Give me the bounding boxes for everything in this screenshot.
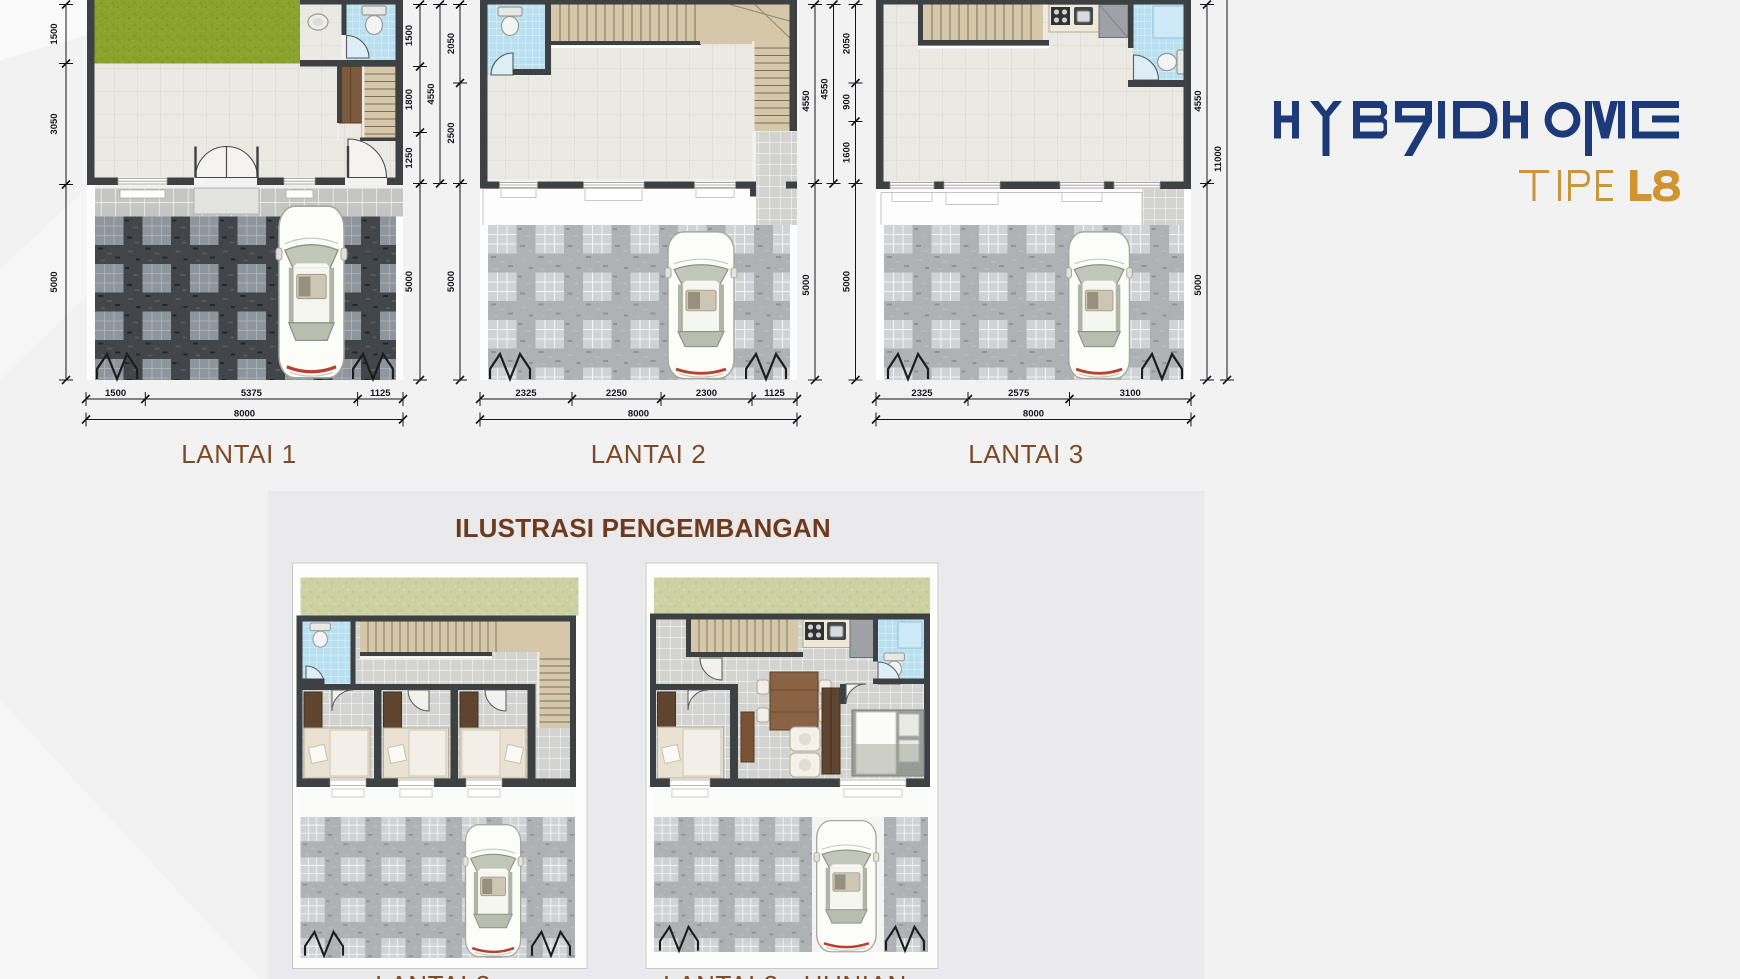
svg-text:1500: 1500 <box>49 23 60 44</box>
svg-text:LANTAI 1: LANTAI 1 <box>181 439 297 469</box>
svg-text:1500: 1500 <box>105 388 126 399</box>
svg-text:2050: 2050 <box>446 33 457 54</box>
svg-text:8000: 8000 <box>628 409 649 420</box>
svg-text:2325: 2325 <box>911 388 933 399</box>
svg-text:4550: 4550 <box>801 90 812 111</box>
svg-text:2050: 2050 <box>842 33 853 54</box>
svg-text:900: 900 <box>842 94 853 110</box>
svg-text:LANTAI 2: LANTAI 2 <box>591 439 707 469</box>
svg-text:2500: 2500 <box>446 122 457 143</box>
svg-text:8000: 8000 <box>1023 409 1044 420</box>
svg-text:LANTAI 3: LANTAI 3 <box>968 439 1084 469</box>
svg-text:1600: 1600 <box>842 142 853 163</box>
svg-text:LANTAI 2: LANTAI 2 <box>375 970 491 979</box>
svg-text:3100: 3100 <box>1120 388 1141 399</box>
svg-text:1125: 1125 <box>764 388 785 399</box>
svg-text:11000: 11000 <box>1213 146 1224 172</box>
svg-text:4550: 4550 <box>820 78 831 99</box>
svg-text:5000: 5000 <box>801 274 812 295</box>
svg-text:2250: 2250 <box>606 388 627 399</box>
svg-text:5000: 5000 <box>49 271 60 292</box>
svg-text:1800: 1800 <box>404 89 415 110</box>
svg-text:2325: 2325 <box>515 388 537 399</box>
svg-text:3050: 3050 <box>49 113 60 134</box>
svg-text:5000: 5000 <box>446 271 457 292</box>
svg-text:4550: 4550 <box>426 83 437 104</box>
svg-text:1500: 1500 <box>404 25 415 46</box>
svg-text:1250: 1250 <box>404 147 415 168</box>
svg-text:LANTAI 3 - HUNIAN: LANTAI 3 - HUNIAN <box>663 970 907 979</box>
svg-text:2300: 2300 <box>696 388 717 399</box>
svg-text:1125: 1125 <box>370 388 391 399</box>
svg-text:2575: 2575 <box>1008 388 1030 399</box>
svg-text:4550: 4550 <box>1193 90 1204 111</box>
svg-text:5000: 5000 <box>1193 274 1204 295</box>
svg-text:5000: 5000 <box>404 271 415 292</box>
svg-text:8000: 8000 <box>234 409 255 420</box>
svg-text:5000: 5000 <box>842 271 853 292</box>
svg-text:ILUSTRASI PENGEMBANGAN: ILUSTRASI PENGEMBANGAN <box>455 513 831 543</box>
svg-text:5375: 5375 <box>241 388 263 399</box>
